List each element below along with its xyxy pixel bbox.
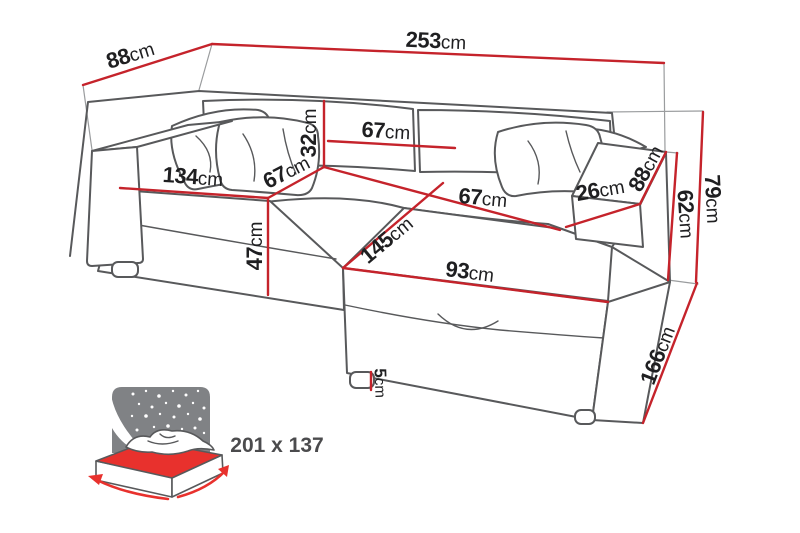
sleeping-area-icon: 201 x 137 [88, 387, 324, 499]
diagram-canvas: 253cm 88cm 32cm 67cm 134cm 67cm 47cm 145… [0, 0, 800, 533]
dim-label-5: 5cm [370, 368, 390, 398]
dim-label-47: 47cm [242, 222, 267, 271]
dim-label-62: 62cm [672, 189, 700, 239]
left-armrest-front [87, 147, 143, 266]
chaise-foot-right [575, 410, 595, 424]
dim-label-32: 32cm [296, 109, 321, 158]
left-armrest-foot [112, 262, 138, 277]
sofa-dimension-diagram: 253cm 88cm 32cm 67cm 134cm 67cm 47cm 145… [0, 0, 800, 533]
dim-label-88-left: 88cm [103, 35, 157, 74]
dim-label-79: 79cm [700, 174, 728, 224]
dim-label-253: 253cm [405, 27, 467, 55]
sleeping-area-size: 201 x 137 [230, 434, 323, 457]
